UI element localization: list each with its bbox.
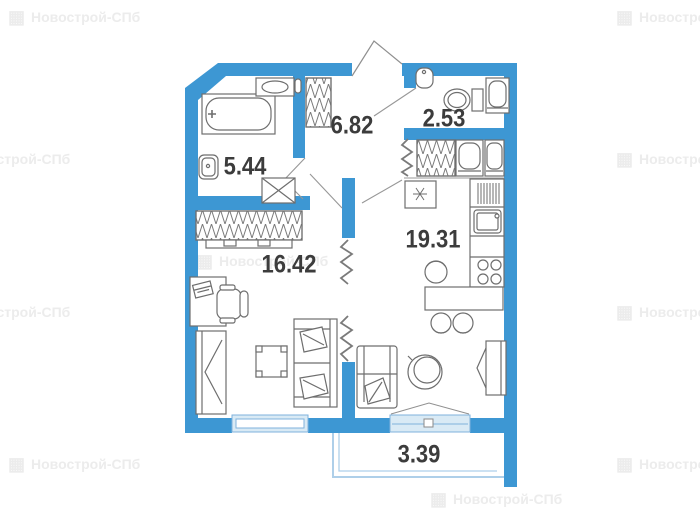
wc-door	[374, 88, 416, 116]
armchair	[357, 346, 397, 408]
wardrobe-right	[477, 341, 506, 395]
dining-table	[425, 287, 503, 310]
fridge	[405, 181, 436, 208]
bedroom-door	[310, 174, 342, 208]
bedroom-wardrobe-top	[196, 211, 302, 248]
hall-wardrobe	[306, 78, 331, 127]
wall-bathroom-right	[293, 63, 305, 158]
office-chair	[217, 285, 248, 323]
kitchen-door	[362, 180, 402, 203]
entrance-door	[352, 41, 402, 76]
door-swing	[391, 403, 469, 414]
closet-unit-2	[485, 140, 504, 176]
coffee-table	[256, 346, 287, 377]
wall-top-left	[222, 63, 352, 76]
kitchen-counter	[470, 179, 504, 287]
kitchen-sink	[474, 210, 501, 233]
sofa	[294, 319, 337, 407]
closet-unit-1	[456, 140, 483, 176]
storage-wardrobe	[417, 140, 455, 176]
bedroom-wardrobe-left	[196, 331, 226, 414]
wall-bottom-3	[470, 418, 504, 433]
round-chair	[408, 355, 442, 389]
bathroom-sink	[256, 78, 301, 96]
hand-basin	[199, 155, 218, 179]
bathtub	[202, 94, 275, 134]
zigzag-lower	[341, 316, 352, 361]
shower-cabinet	[486, 78, 509, 113]
room-label-bedroom: 16.42	[261, 251, 316, 280]
wall-divider-upper	[342, 178, 355, 238]
zigzag-hall	[402, 139, 412, 176]
room-label-toilet: 2.53	[423, 105, 466, 134]
washing-machine	[262, 178, 295, 203]
zigzag-upper	[341, 240, 352, 284]
wall-divider-lower	[342, 362, 355, 418]
wall-right	[504, 63, 517, 487]
vent-zigzags	[341, 139, 412, 361]
room-label-balcony: 3.39	[398, 441, 441, 470]
room-label-hallway: 6.82	[331, 112, 374, 141]
floor-plan-drawing	[0, 0, 700, 525]
wall-bottom-1	[185, 418, 232, 433]
balcony-door	[390, 403, 470, 432]
wall-wc-left	[404, 63, 416, 88]
room-label-kitchen-living: 19.31	[405, 226, 460, 255]
bedroom-window	[232, 415, 308, 432]
wall-bottom-2	[308, 418, 390, 433]
room-label-bathroom: 5.44	[224, 153, 267, 182]
corner-sink	[416, 68, 433, 88]
floor-plan-page: Новострой-СПб Новострой-СПб Новострой-СП…	[0, 0, 700, 525]
